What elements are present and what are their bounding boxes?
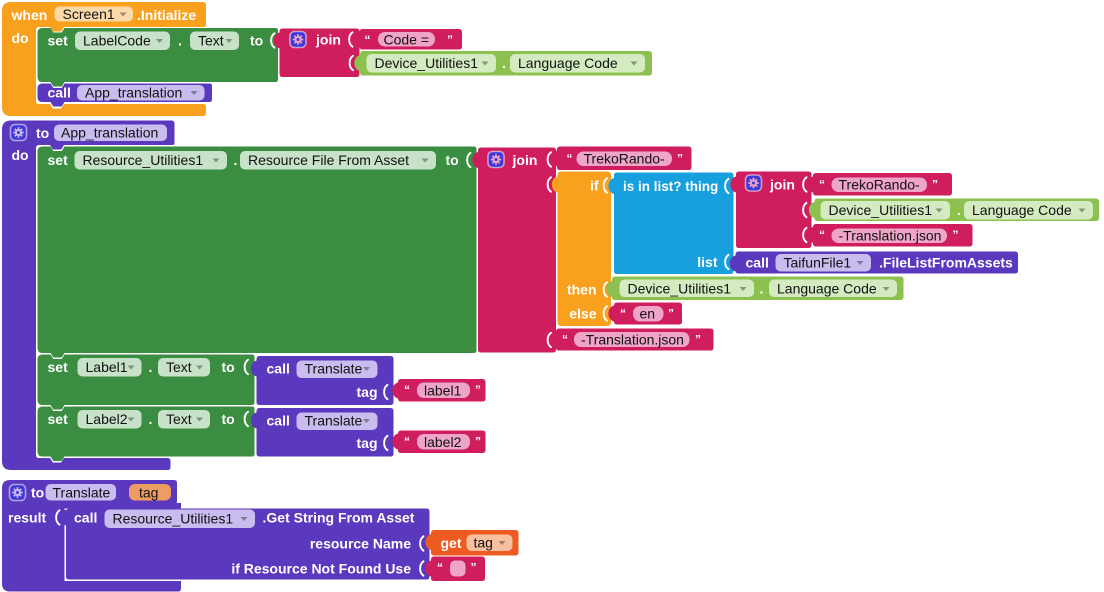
svg-text:”: ” — [668, 307, 674, 321]
svg-text:join: join — [315, 32, 341, 48]
svg-text:Text: Text — [198, 33, 224, 49]
svg-text:result: result — [8, 510, 46, 526]
svg-text:.: . — [502, 55, 506, 71]
svg-text:call: call — [48, 85, 71, 101]
svg-text:do: do — [12, 30, 29, 46]
svg-text:do: do — [12, 147, 29, 163]
svg-text:Language Code: Language Code — [777, 281, 877, 297]
svg-text:-Translation.json: -Translation.json — [839, 228, 942, 244]
svg-text:join: join — [512, 152, 538, 168]
svg-text:join: join — [769, 177, 795, 193]
svg-text:.: . — [149, 359, 153, 375]
svg-text:Language Code: Language Code — [518, 55, 618, 71]
svg-text:when: when — [11, 7, 48, 23]
svg-text:set: set — [48, 33, 69, 49]
svg-text:App_translation: App_translation — [61, 125, 158, 141]
svg-text:tag: tag — [357, 435, 378, 451]
svg-text:label2: label2 — [424, 434, 462, 450]
svg-text:call: call — [74, 510, 97, 526]
svg-text:TrekoRando-: TrekoRando- — [839, 177, 921, 193]
svg-text:set: set — [48, 359, 69, 375]
svg-text:.: . — [149, 411, 153, 427]
svg-text:Translate: Translate — [305, 413, 363, 429]
svg-text:to: to — [31, 485, 44, 501]
svg-text:LabelCode: LabelCode — [83, 33, 151, 49]
svg-text:to: to — [36, 125, 49, 141]
svg-text:.Initialize: .Initialize — [137, 7, 196, 23]
svg-text:”: ” — [447, 33, 453, 47]
svg-text:.: . — [178, 33, 182, 49]
svg-text:en: en — [640, 306, 656, 322]
svg-text:set: set — [48, 411, 69, 427]
svg-text:“: “ — [819, 178, 825, 192]
svg-text:Screen1: Screen1 — [63, 6, 115, 22]
svg-text:label1: label1 — [424, 383, 462, 399]
svg-text:if Resource Not Found Use: if Resource Not Found Use — [231, 561, 411, 577]
svg-text:to: to — [222, 359, 235, 375]
svg-text:to: to — [250, 33, 263, 49]
svg-text:Text: Text — [166, 411, 192, 427]
svg-text:set: set — [48, 152, 69, 168]
svg-text:to: to — [446, 152, 459, 168]
svg-text:is in list? thing: is in list? thing — [623, 179, 718, 194]
svg-text:Translate: Translate — [53, 485, 111, 501]
svg-text:“: “ — [437, 561, 443, 575]
svg-text:Language Code: Language Code — [972, 202, 1072, 218]
svg-text:”: ” — [677, 152, 683, 166]
svg-text:Device_Utilities1: Device_Utilities1 — [829, 202, 933, 218]
svg-text:Resource_Utilities1: Resource_Utilities1 — [83, 152, 204, 168]
svg-text:“: “ — [404, 435, 410, 449]
svg-text:”: ” — [475, 383, 481, 397]
svg-text:list: list — [697, 254, 718, 270]
svg-text:“: “ — [365, 33, 371, 47]
svg-text:Translate: Translate — [305, 361, 363, 377]
svg-text:Label2: Label2 — [86, 411, 128, 427]
svg-text:“: “ — [620, 307, 626, 321]
svg-text:Device_Utilities1: Device_Utilities1 — [628, 281, 732, 297]
svg-text:tag: tag — [139, 485, 158, 501]
svg-text:-Translation.json: -Translation.json — [581, 332, 684, 348]
svg-text:tag: tag — [357, 384, 378, 400]
svg-text:Text: Text — [166, 359, 192, 375]
svg-text:”: ” — [475, 435, 481, 449]
svg-text:call: call — [746, 255, 769, 271]
svg-text:call: call — [267, 361, 290, 377]
svg-text:“: “ — [562, 333, 568, 347]
svg-text:Device_Utilities1: Device_Utilities1 — [375, 55, 479, 71]
svg-text:”: ” — [953, 228, 959, 242]
svg-text:Label1: Label1 — [86, 359, 128, 375]
svg-text:else: else — [569, 306, 596, 322]
svg-text:.: . — [234, 152, 238, 168]
svg-text:Resource File From Asset: Resource File From Asset — [248, 152, 409, 168]
svg-text:TaifunFile1: TaifunFile1 — [784, 255, 852, 271]
svg-text:get: get — [441, 535, 462, 551]
svg-text:Resource_Utilities1: Resource_Utilities1 — [113, 511, 234, 527]
svg-text:if: if — [590, 178, 599, 194]
svg-text:.: . — [957, 202, 961, 218]
svg-text:“: “ — [404, 383, 410, 397]
svg-text:”: ” — [932, 178, 938, 192]
svg-text:to: to — [222, 411, 235, 427]
svg-text:call: call — [267, 413, 290, 429]
svg-text:”: ” — [471, 561, 477, 575]
svg-text:.Get String From Asset: .Get String From Asset — [263, 510, 415, 526]
svg-text:TrekoRando-: TrekoRando- — [584, 151, 666, 167]
svg-text:tag: tag — [474, 535, 493, 551]
svg-text:.: . — [760, 281, 764, 297]
svg-text:“: “ — [819, 228, 825, 242]
svg-text:resource Name: resource Name — [310, 536, 411, 552]
svg-text:Code =: Code = — [384, 32, 430, 48]
svg-text:”: ” — [695, 333, 701, 347]
svg-text:App_translation: App_translation — [85, 85, 182, 101]
svg-text:.FileListFromAssets: .FileListFromAssets — [879, 255, 1013, 271]
svg-text:then: then — [567, 282, 597, 298]
svg-text:“: “ — [567, 152, 573, 166]
